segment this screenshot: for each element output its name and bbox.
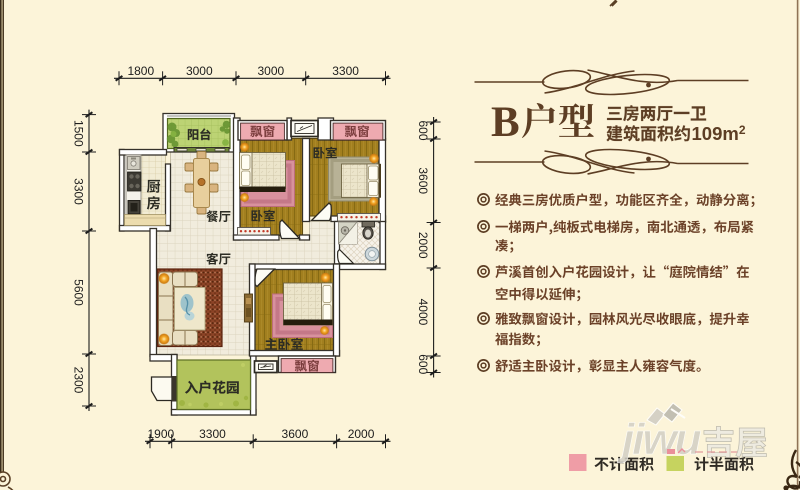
svg-text:3300: 3300 [72, 178, 86, 205]
svg-text:3000: 3000 [257, 64, 284, 78]
svg-text:1900: 1900 [147, 427, 174, 441]
svg-text:2000: 2000 [348, 427, 375, 441]
svg-text:600: 600 [416, 354, 430, 374]
svg-text:3600: 3600 [282, 427, 309, 441]
svg-text:jiwu: jiwu [617, 415, 702, 464]
svg-text:2300: 2300 [72, 367, 86, 394]
svg-text:3600: 3600 [416, 167, 430, 194]
svg-text:3300: 3300 [199, 427, 226, 441]
svg-text:1800: 1800 [127, 64, 154, 78]
svg-text:4000: 4000 [416, 299, 430, 326]
svg-text:3000: 3000 [186, 64, 213, 78]
svg-text:1500: 1500 [72, 120, 86, 147]
svg-text:B: B [491, 99, 520, 146]
svg-text:3300: 3300 [332, 64, 359, 78]
svg-text:2000: 2000 [416, 232, 430, 259]
svg-text:5600: 5600 [72, 279, 86, 306]
svg-text:600: 600 [416, 120, 430, 140]
svg-text:109m2: 109m2 [692, 123, 746, 144]
